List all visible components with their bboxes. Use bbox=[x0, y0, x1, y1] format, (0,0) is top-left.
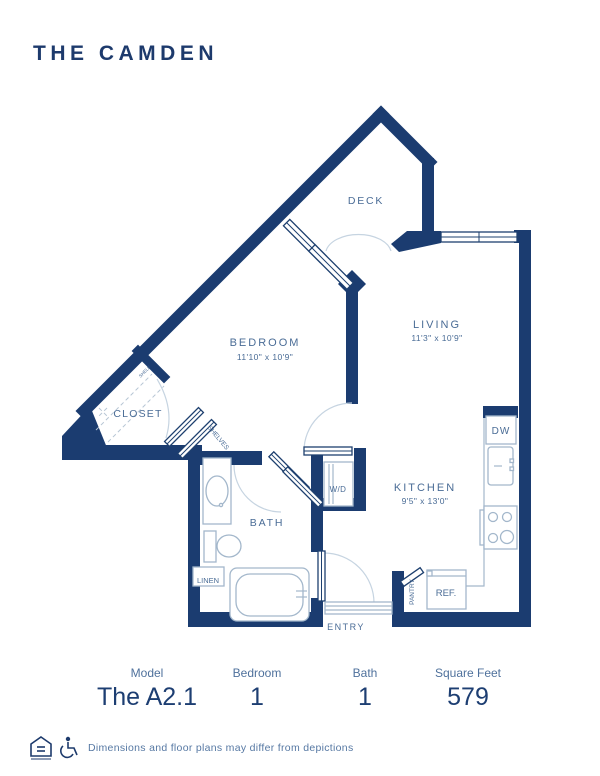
equal-housing-icon bbox=[31, 737, 51, 759]
wall-bedroom-living-divider bbox=[346, 288, 358, 404]
room-label-closet: CLOSET bbox=[113, 408, 162, 420]
feature-label-shelf: SHELF bbox=[138, 365, 152, 379]
wall-bath-left bbox=[188, 451, 200, 627]
wall-right bbox=[519, 230, 531, 626]
refrigerator-hinge bbox=[427, 571, 432, 576]
feature-label-linen: LINEN bbox=[197, 576, 219, 585]
sink-knob bbox=[510, 459, 514, 463]
wheelchair-accessible-icon bbox=[61, 737, 77, 758]
footer: Dimensions and floor plans may differ fr… bbox=[30, 735, 570, 765]
wall-main-diagonal bbox=[84, 114, 381, 411]
room-dims-living: 11'3" x 10'9" bbox=[411, 333, 462, 343]
bedroom-door-threshold bbox=[304, 447, 352, 455]
wall-deck-right bbox=[422, 158, 434, 232]
entry-sill bbox=[325, 602, 392, 614]
stats-row: Model The A2.1 Bedroom 1 Bath 1 Square F… bbox=[0, 666, 600, 726]
floor-plan: DECK LIVING 11'3" x 10'9" BEDROOM 11'10"… bbox=[0, 0, 600, 660]
feature-label-shelves: SHELVES bbox=[206, 424, 231, 452]
wall-living-chamfer bbox=[391, 231, 441, 252]
feature-label-dw: DW bbox=[492, 426, 511, 437]
stove-burner bbox=[489, 513, 498, 522]
room-dims-kitchen: 9'5" x 13'0" bbox=[402, 496, 449, 506]
stat-sqft: Square Feet 579 bbox=[403, 666, 533, 712]
washer-dryer bbox=[324, 462, 353, 506]
entry-door-leaf bbox=[318, 551, 325, 601]
bath-sink-faucet bbox=[219, 503, 222, 506]
feature-label-ref: REF. bbox=[436, 588, 457, 599]
room-label-living: LIVING bbox=[413, 319, 461, 331]
kitchen-counter-edge bbox=[466, 418, 484, 586]
walls bbox=[62, 114, 531, 627]
stove-burner bbox=[489, 534, 498, 543]
bath-sink bbox=[206, 476, 228, 506]
footer-disclaimer: Dimensions and floor plans may differ fr… bbox=[88, 742, 354, 754]
stat-sqft-value: 579 bbox=[403, 683, 533, 712]
room-dims-bedroom: 11'10" x 10'9" bbox=[237, 352, 293, 362]
feature-label-wd: W/D bbox=[330, 485, 347, 494]
toilet-bowl bbox=[217, 535, 241, 557]
bath-door-arc bbox=[234, 465, 281, 512]
wall-kitchen-bottom bbox=[392, 612, 531, 627]
room-label-bath: BATH bbox=[250, 517, 284, 529]
wall-wd-right bbox=[354, 448, 366, 511]
deck-slider-panel-2 bbox=[309, 245, 354, 290]
sink-knob bbox=[510, 467, 514, 471]
stove-burner bbox=[501, 531, 514, 544]
wall-pantry-leg bbox=[392, 571, 404, 627]
living-window bbox=[441, 232, 517, 242]
stove bbox=[484, 506, 517, 549]
footer-icons bbox=[30, 735, 80, 761]
feature-label-pantry: PANTRY bbox=[409, 578, 416, 604]
deck-door-arc bbox=[326, 234, 391, 251]
wall-deck-right-diagonal bbox=[381, 114, 429, 162]
feature-label-entry: ENTRY bbox=[327, 622, 365, 632]
wall-vestibule-lower bbox=[311, 598, 323, 627]
room-label-bedroom: BEDROOM bbox=[230, 337, 301, 349]
labels: DECK LIVING 11'3" x 10'9" BEDROOM 11'10"… bbox=[113, 195, 510, 632]
room-label-deck: DECK bbox=[348, 195, 384, 207]
bathtub-inner bbox=[236, 574, 303, 616]
stove-burner bbox=[503, 513, 512, 522]
entry-door-arc bbox=[324, 553, 374, 603]
stat-sqft-label: Square Feet bbox=[403, 666, 533, 680]
toilet-tank bbox=[204, 531, 216, 562]
room-label-kitchen: KITCHEN bbox=[394, 482, 456, 494]
bedroom-door-arc bbox=[304, 403, 352, 451]
